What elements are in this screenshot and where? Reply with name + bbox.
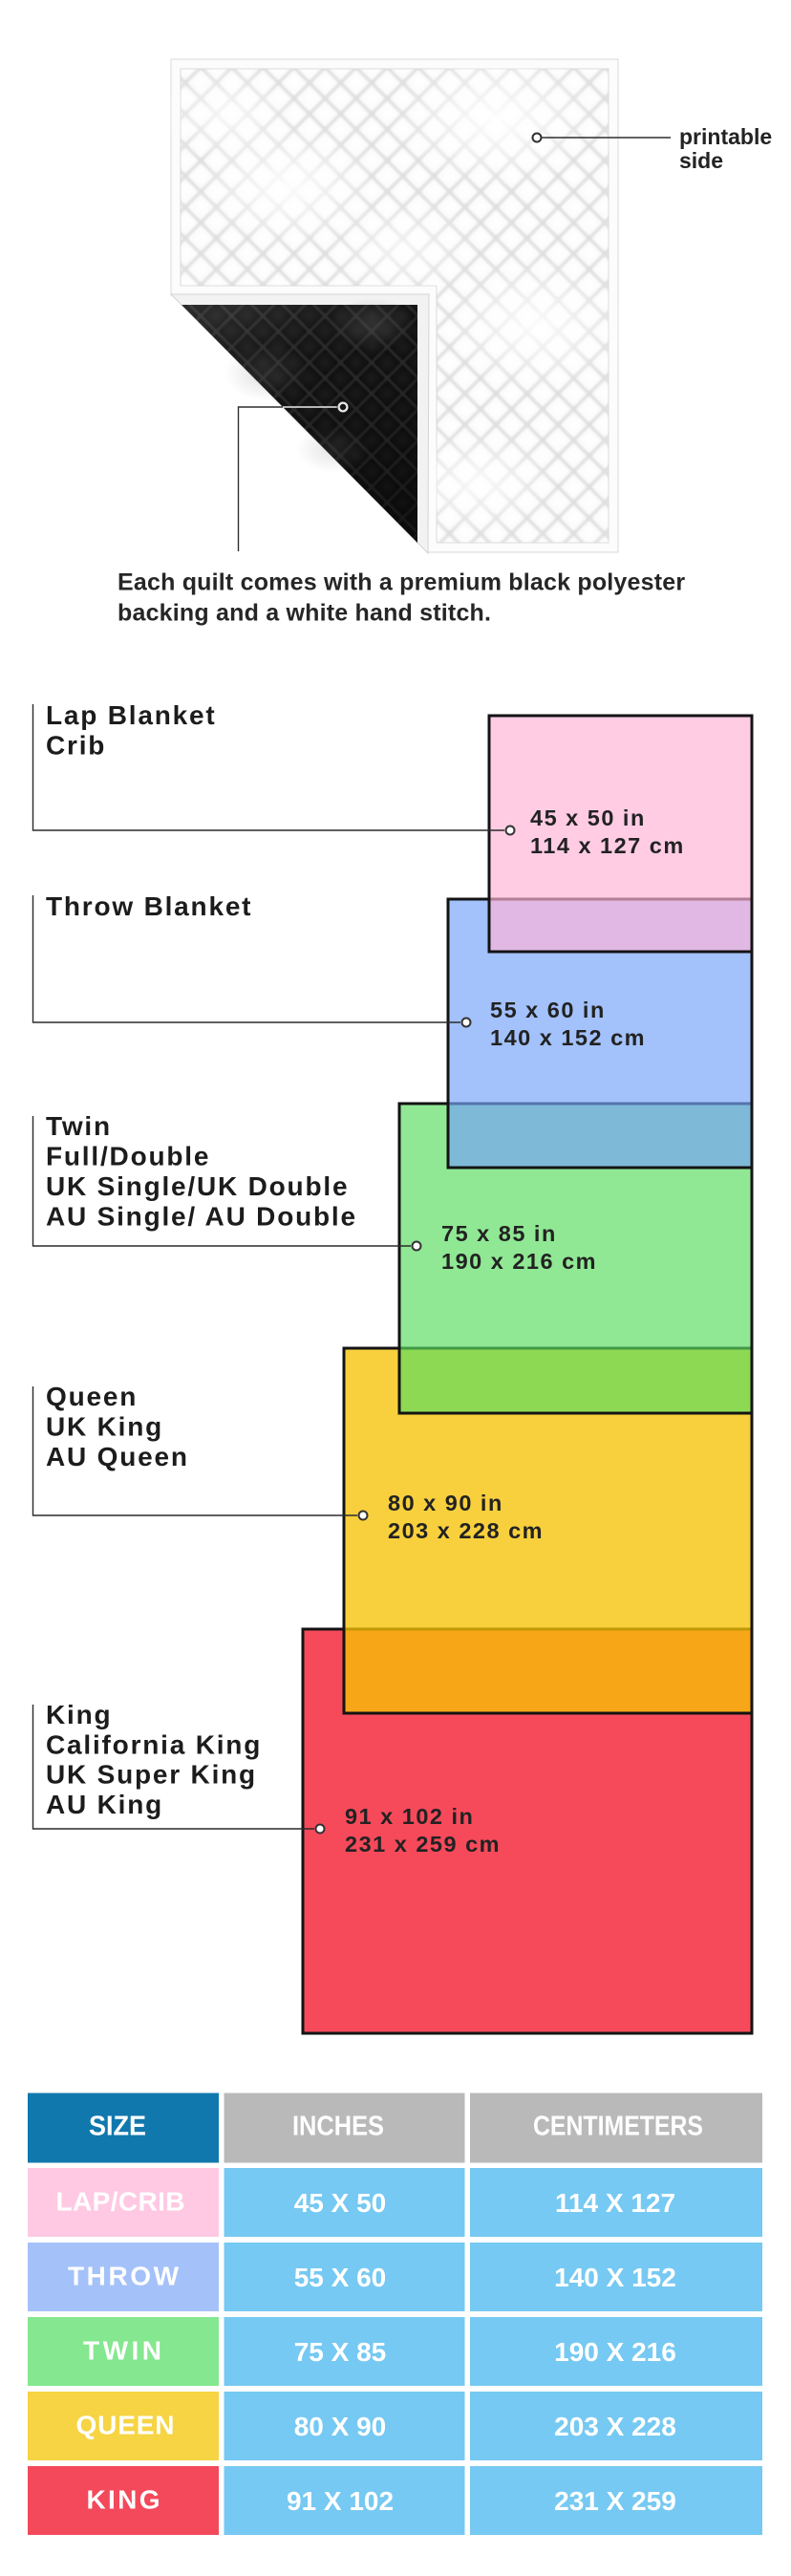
svg-text:Full/Double: Full/Double bbox=[46, 1142, 210, 1171]
svg-text:231 x 259 cm: 231 x 259 cm bbox=[345, 1832, 501, 1857]
svg-text:140 X 152: 140 X 152 bbox=[554, 2263, 676, 2292]
svg-text:CENTIMETERS: CENTIMETERS bbox=[533, 2112, 703, 2142]
svg-text:TWIN: TWIN bbox=[83, 2336, 161, 2366]
svg-text:King: King bbox=[46, 1700, 112, 1729]
svg-text:Crib: Crib bbox=[46, 731, 106, 761]
svg-text:UK Single/UK Double: UK Single/UK Double bbox=[46, 1171, 349, 1201]
svg-text:Queen: Queen bbox=[46, 1382, 138, 1411]
svg-text:203 x 228 cm: 203 x 228 cm bbox=[388, 1518, 544, 1543]
svg-text:91 X 102: 91 X 102 bbox=[287, 2486, 394, 2516]
svg-text:AU Single/ AU Double: AU Single/ AU Double bbox=[46, 1202, 357, 1232]
svg-text:75 x 85 in: 75 x 85 in bbox=[441, 1221, 557, 1246]
svg-text:114 x 127 cm: 114 x 127 cm bbox=[530, 833, 685, 858]
svg-text:Throw Blanket: Throw Blanket bbox=[46, 891, 252, 921]
svg-text:231 X 259: 231 X 259 bbox=[554, 2486, 676, 2516]
svg-text:AU Queen: AU Queen bbox=[46, 1442, 189, 1471]
svg-text:Each quilt comes with a premiu: Each quilt comes with a premium black po… bbox=[118, 569, 685, 596]
svg-text:45 x 50 in: 45 x 50 in bbox=[530, 805, 646, 830]
svg-text:printable: printable bbox=[679, 124, 772, 149]
svg-text:LAP/CRIB: LAP/CRIB bbox=[56, 2187, 185, 2217]
svg-text:AU King: AU King bbox=[46, 1790, 163, 1819]
svg-text:Lap Blanket: Lap Blanket bbox=[46, 700, 217, 730]
svg-text:140 x 152 cm: 140 x 152 cm bbox=[490, 1025, 646, 1050]
svg-text:55 x 60 in: 55 x 60 in bbox=[490, 998, 606, 1022]
svg-text:80 x 90 in: 80 x 90 in bbox=[388, 1491, 503, 1515]
svg-text:80 X 90: 80 X 90 bbox=[294, 2412, 387, 2441]
svg-text:75 X 85: 75 X 85 bbox=[294, 2337, 387, 2367]
svg-text:Twin: Twin bbox=[46, 1111, 112, 1141]
svg-text:California King: California King bbox=[46, 1730, 262, 1760]
svg-text:QUEEN: QUEEN bbox=[76, 2411, 175, 2440]
svg-text:side: side bbox=[679, 148, 723, 173]
svg-text:203 X 228: 203 X 228 bbox=[554, 2412, 676, 2441]
svg-text:114 X 127: 114 X 127 bbox=[555, 2188, 675, 2218]
svg-text:45 X 50: 45 X 50 bbox=[294, 2188, 387, 2218]
svg-text:190 x 216 cm: 190 x 216 cm bbox=[441, 1249, 597, 1274]
svg-text:backing and a white hand stitc: backing and a white hand stitch. bbox=[118, 600, 491, 627]
svg-text:55 X 60: 55 X 60 bbox=[294, 2263, 387, 2292]
svg-text:INCHES: INCHES bbox=[292, 2112, 384, 2142]
svg-text:SIZE: SIZE bbox=[89, 2112, 146, 2142]
svg-text:UK King: UK King bbox=[46, 1412, 163, 1442]
svg-text:UK Super King: UK Super King bbox=[46, 1760, 257, 1790]
svg-text:190 X 216: 190 X 216 bbox=[554, 2337, 676, 2367]
svg-text:91 x 102 in: 91 x 102 in bbox=[345, 1804, 474, 1829]
svg-text:KING: KING bbox=[87, 2485, 160, 2515]
